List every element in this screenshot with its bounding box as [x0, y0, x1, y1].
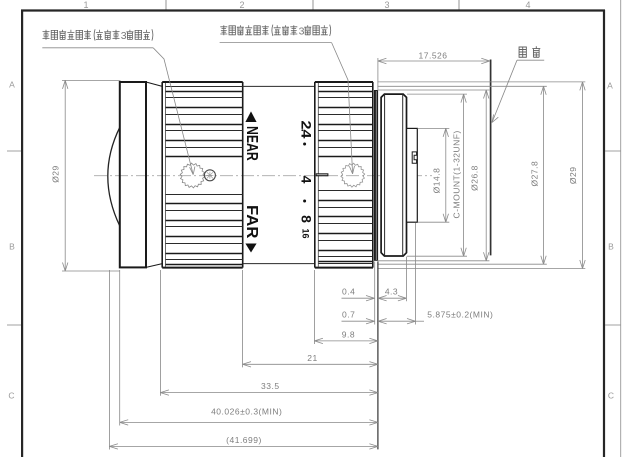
svg-text:17.526: 17.526 [419, 50, 448, 60]
svg-text:Ø26.8: Ø26.8 [469, 165, 479, 191]
svg-text:NEAR: NEAR [243, 126, 260, 161]
svg-text:3: 3 [121, 30, 127, 42]
svg-text:4: 4 [525, 0, 530, 10]
svg-text:3: 3 [384, 0, 389, 10]
svg-text:4.3: 4.3 [385, 287, 398, 297]
svg-text:A: A [607, 81, 613, 91]
svg-text:Ø27.8: Ø27.8 [529, 161, 539, 187]
svg-text:0.7: 0.7 [342, 310, 355, 320]
svg-text:16: 16 [301, 228, 311, 238]
svg-text:C: C [608, 391, 614, 401]
svg-text:C: C [8, 391, 14, 401]
svg-text:Ø14.8: Ø14.8 [432, 168, 442, 194]
svg-text:(41.699): (41.699) [226, 435, 262, 445]
svg-text:40.026±0.3(MIN): 40.026±0.3(MIN) [211, 407, 282, 417]
svg-text:3: 3 [299, 26, 305, 38]
svg-text:21: 21 [307, 353, 317, 363]
svg-text:B: B [608, 242, 614, 252]
svg-text:Ø29: Ø29 [51, 165, 61, 183]
svg-text:2: 2 [239, 0, 244, 10]
svg-text:1: 1 [83, 0, 88, 10]
svg-text:5.875±0.2(MIN): 5.875±0.2(MIN) [427, 310, 493, 320]
svg-text:FAR: FAR [243, 205, 260, 238]
svg-text:C-MOUNT(1-32UNF): C-MOUNT(1-32UNF) [451, 130, 461, 218]
svg-text:24: 24 [299, 121, 315, 139]
svg-text:A: A [9, 80, 15, 90]
svg-text:33.5: 33.5 [261, 381, 280, 391]
svg-text:4: 4 [299, 176, 315, 184]
svg-text:0.4: 0.4 [342, 287, 355, 297]
svg-text:B: B [9, 242, 15, 252]
svg-text:Ø29: Ø29 [568, 167, 578, 185]
svg-text:8: 8 [299, 215, 315, 223]
svg-text:9.8: 9.8 [342, 330, 355, 340]
